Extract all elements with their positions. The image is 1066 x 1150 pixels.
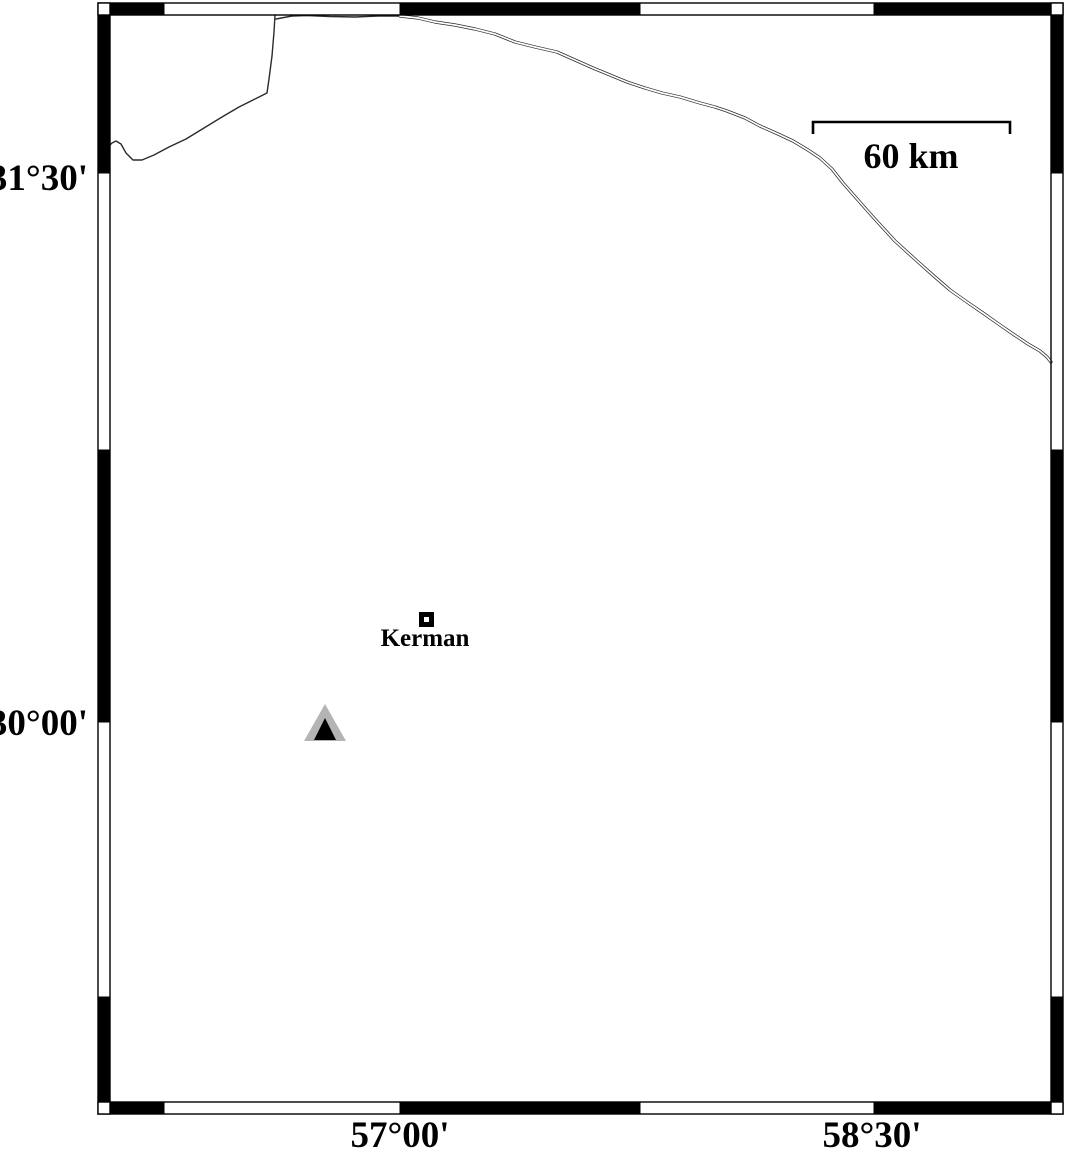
map-svg: 31°30' 30°00' 57°00' 58°30' 60 km Kerman bbox=[0, 0, 1066, 1150]
map-plot-area bbox=[110, 15, 1051, 1102]
frame-segment bbox=[98, 450, 110, 722]
frame-segment bbox=[1051, 997, 1063, 1102]
lat-label-lower: 30°00' bbox=[0, 703, 88, 744]
frame-corner bbox=[98, 1102, 110, 1114]
city-label: Kerman bbox=[381, 625, 470, 652]
frame-segment bbox=[98, 997, 110, 1102]
map-canvas: 31°30' 30°00' 57°00' 58°30' 60 km Kerman bbox=[0, 0, 1066, 1150]
frame-segment bbox=[400, 1102, 640, 1114]
frame-segment bbox=[110, 1102, 164, 1114]
scale-bar-label: 60 km bbox=[863, 136, 958, 176]
lon-label-left: 57°00' bbox=[350, 1115, 449, 1150]
lat-label-upper: 31°30' bbox=[0, 158, 88, 199]
square-icon-center bbox=[424, 617, 429, 622]
frame-segment bbox=[1051, 15, 1063, 173]
frame-segment bbox=[110, 3, 164, 15]
frame-segment bbox=[874, 1102, 1051, 1114]
lon-label-right: 58°30' bbox=[822, 1115, 921, 1150]
frame-segment bbox=[98, 15, 110, 173]
frame-segment bbox=[1051, 450, 1063, 722]
frame-segment bbox=[874, 3, 1051, 15]
frame-corner bbox=[1051, 3, 1063, 15]
frame-segment bbox=[400, 3, 640, 15]
frame-corner bbox=[1051, 1102, 1063, 1114]
frame-corner bbox=[98, 3, 110, 15]
